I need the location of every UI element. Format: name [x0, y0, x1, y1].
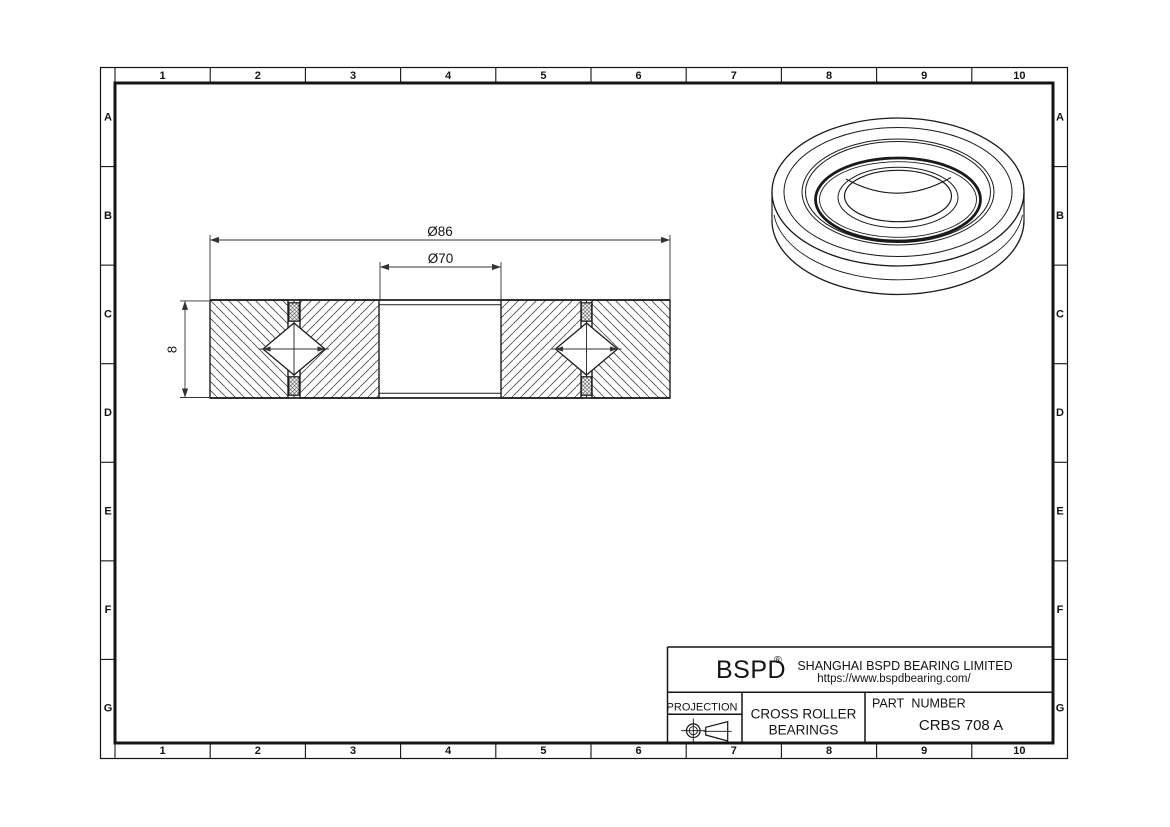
grid-column-label: 1: [160, 70, 166, 82]
grid-column-label: 1: [160, 745, 166, 757]
grid-row-label: A: [104, 111, 112, 123]
title-block: BSPD ® SHANGHAI BSPD BEARING LIMITED htt…: [667, 647, 1053, 743]
grid-column-label: 10: [1013, 70, 1025, 82]
isometric-view: [772, 118, 1024, 295]
dim-arrow: [380, 264, 389, 270]
ring-seam-outer: [802, 139, 994, 245]
part-number-value: CRBS 708 A: [919, 717, 1003, 734]
third-angle-projection-icon: [681, 719, 732, 743]
grid-column-label: 9: [921, 745, 927, 757]
grid-column-label: 5: [540, 70, 546, 82]
dimension-width: 8: [165, 301, 210, 398]
grid-row-label: C: [1056, 308, 1064, 320]
part-number-label: PART NUMBER: [872, 697, 966, 711]
grid-column-label: 2: [255, 745, 261, 757]
grid-column-label: 6: [636, 745, 642, 757]
engineering-drawing: 1122334455667788991010AABBCCDDEEFFGG: [0, 0, 1170, 827]
seal-left-top: [289, 303, 299, 321]
grid-column-label: 8: [826, 70, 832, 82]
section-view: [210, 300, 670, 398]
inner-ring-gap-line: [820, 162, 977, 238]
product-name-line1: CROSS ROLLER: [751, 707, 857, 722]
dim-arrow: [182, 301, 188, 310]
grid-column-label: 9: [921, 70, 927, 82]
outer-wall-bottom-chamfer: [774, 215, 1023, 280]
projection-label: PROJECTION: [667, 702, 738, 714]
registered-mark: ®: [774, 654, 782, 666]
grid-row-label: F: [1057, 604, 1064, 616]
grid-column-label: 4: [445, 70, 452, 82]
seal-right-bottom: [581, 377, 591, 395]
product-name-line2: BEARINGS: [769, 723, 839, 738]
dimension-bore-label: Ø70: [428, 251, 454, 266]
dimension-bore-diameter: Ø70: [380, 251, 501, 299]
dimension-od-label: Ø86: [427, 224, 453, 239]
grid-row-label: D: [1056, 407, 1064, 419]
inner-ring-chamfer: [838, 167, 958, 227]
grid-column-label: 8: [826, 745, 832, 757]
grid-row-label: G: [104, 703, 113, 715]
grid-column-label: 3: [350, 70, 356, 82]
seal-left-bottom: [289, 377, 299, 395]
grid-row-label: G: [1056, 703, 1065, 715]
company-name: SHANGHAI BSPD BEARING LIMITED: [797, 659, 1012, 673]
grid-row-label: C: [104, 308, 112, 320]
grid-column-label: 7: [731, 745, 737, 757]
grid-column-label: 2: [255, 70, 261, 82]
inner-border: [115, 83, 1053, 743]
grid-row-label: D: [104, 407, 112, 419]
sheet-frame: [101, 68, 1068, 759]
grid-column-label: 7: [731, 70, 737, 82]
dim-arrow: [661, 237, 670, 243]
grid-row-label: E: [1056, 506, 1063, 518]
drawing-sheet: 1122334455667788991010AABBCCDDEEFFGG: [0, 0, 1170, 827]
seal-right-top: [581, 303, 591, 321]
bore-inner-wall: [846, 178, 951, 194]
grid-row-label: B: [104, 210, 112, 222]
grid-column-label: 3: [350, 745, 356, 757]
bore-rim: [845, 170, 952, 221]
grid-row-label: E: [104, 506, 111, 518]
outer-ring-top-edge: [772, 118, 1024, 266]
grid-column-label: 4: [445, 745, 452, 757]
dim-arrow: [210, 237, 219, 243]
grid-row-label: B: [1056, 210, 1064, 222]
grid-references: 1122334455667788991010AABBCCDDEEFFGG: [101, 68, 1067, 758]
dim-arrow: [182, 389, 188, 398]
outer-border: [101, 68, 1068, 759]
grid-row-label: F: [105, 604, 112, 616]
website-url: https://www.bspdbearing.com/: [817, 673, 971, 685]
grid-row-label: A: [1056, 111, 1064, 123]
outer-wall-bottom: [772, 221, 1024, 295]
grid-column-label: 6: [636, 70, 642, 82]
dim-arrow: [492, 264, 501, 270]
dimension-width-label: 8: [165, 346, 180, 353]
grid-column-label: 10: [1013, 745, 1025, 757]
grid-column-label: 5: [540, 745, 546, 757]
